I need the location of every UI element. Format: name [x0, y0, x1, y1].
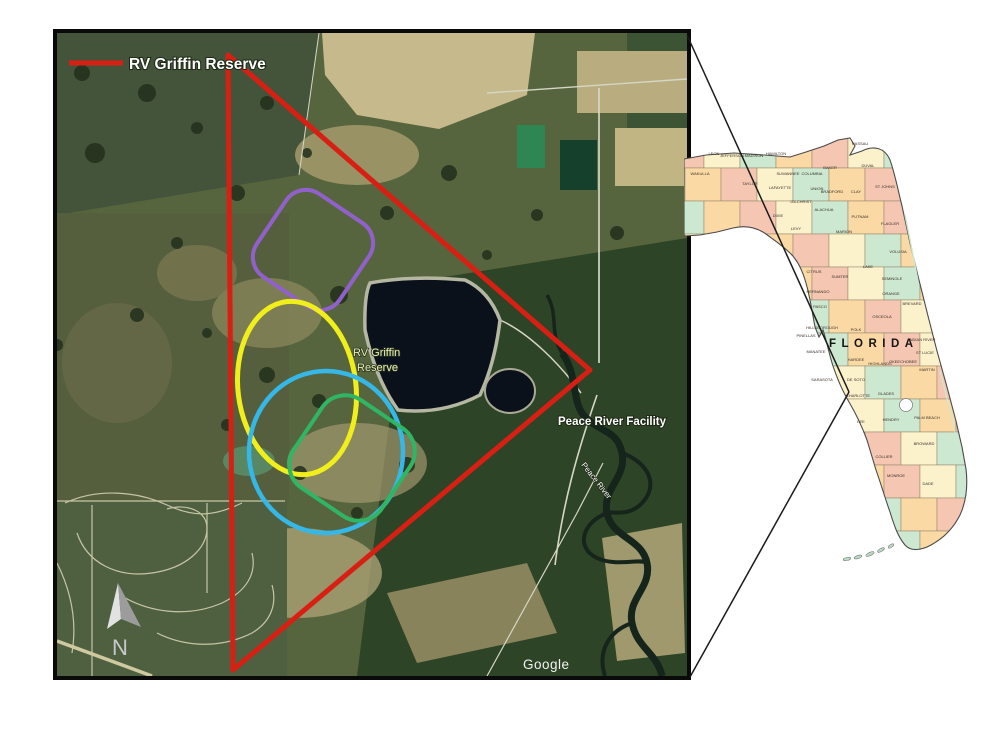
county-cell — [848, 531, 884, 564]
field-right — [615, 128, 687, 186]
county-cell — [793, 366, 829, 399]
county-cell — [757, 300, 793, 333]
county-cell — [740, 333, 776, 366]
green-pond — [517, 125, 545, 168]
county-cell — [757, 564, 793, 570]
county-cell — [684, 465, 704, 498]
county-label: CLAY — [851, 189, 861, 194]
county-cell — [865, 432, 901, 465]
county-cell — [721, 564, 757, 570]
county-label: HERNANDO — [807, 289, 830, 294]
county-label: ORANGE — [882, 291, 900, 296]
county-cell — [704, 201, 740, 234]
county-cell — [829, 432, 865, 465]
county-cell — [685, 234, 721, 267]
county-label: OKEECHOBEE — [889, 359, 917, 364]
county-cell — [704, 333, 740, 366]
county-cell — [956, 531, 974, 564]
county-cell — [684, 267, 704, 300]
florida-keys — [843, 543, 895, 561]
county-cell — [956, 465, 974, 498]
county-cell — [901, 168, 937, 201]
county-cell — [685, 300, 721, 333]
county-cell — [721, 234, 757, 267]
county-label: POLK — [851, 327, 862, 332]
field-patch — [295, 125, 419, 185]
county-label: HIGHLANDS — [868, 361, 892, 366]
county-cell — [740, 267, 776, 300]
county-cell — [812, 465, 848, 498]
county-label: PINELLAS — [796, 333, 815, 338]
county-label: LAFAYETTE — [769, 185, 792, 190]
county-label: TAYLOR — [742, 181, 758, 186]
county-label: DADE — [922, 481, 933, 486]
county-cell — [973, 564, 974, 570]
county-cell — [937, 432, 973, 465]
county-label: LEVY — [791, 226, 802, 231]
county-cell — [757, 498, 793, 531]
figure: RV Griffin Reserve RV Griffin Reserve Pe… — [0, 0, 1003, 744]
county-label: BREVARD — [902, 301, 921, 306]
county-label: NASSAU — [852, 141, 869, 146]
county-label: DIXIE — [773, 213, 784, 218]
county-cell — [956, 135, 974, 168]
county-label: WAKULLA — [691, 171, 710, 176]
county-label: HARDEE — [848, 357, 865, 362]
county-cell — [884, 465, 920, 498]
county-cell — [721, 300, 757, 333]
county-cell — [685, 498, 721, 531]
county-label: GILCHRIST — [790, 199, 812, 204]
county-cell — [956, 399, 974, 432]
small-reservoir — [485, 369, 535, 413]
county-cell — [684, 201, 704, 234]
county-label: PASCO — [813, 304, 827, 309]
county-cell — [685, 366, 721, 399]
county-cell — [793, 432, 829, 465]
county-cell — [704, 399, 740, 432]
county-label: CHARLOTTE — [846, 393, 871, 398]
county-cell — [829, 564, 865, 570]
lake-okeechobee — [900, 399, 913, 412]
county-cell — [793, 498, 829, 531]
florida-canvas: WAKULLALEONJEFFERSONMADISONHAMILTONSUWAN… — [684, 133, 974, 570]
county-cell — [920, 135, 956, 168]
google-watermark: Google — [523, 657, 570, 672]
county-label: MARTIN — [919, 367, 934, 372]
county-label: LAKE — [863, 264, 874, 269]
county-label: MONROE — [887, 473, 905, 478]
county-label: PUTNAM — [852, 214, 869, 219]
county-cell — [829, 168, 865, 201]
county-label: HAMILTON — [766, 151, 786, 156]
county-cell — [901, 432, 937, 465]
county-cell — [776, 531, 812, 564]
county-cell — [812, 399, 848, 432]
county-label: MADISON — [745, 153, 764, 158]
county-cell — [901, 498, 937, 531]
county-cell — [829, 234, 865, 267]
facility-label: Peace River Facility — [558, 416, 667, 428]
county-cell — [685, 564, 721, 570]
county-cell — [740, 465, 776, 498]
county-label: VOLUSIA — [889, 249, 907, 254]
county-label: LEE — [857, 419, 865, 424]
county-label: CITRUS — [807, 269, 822, 274]
county-cell — [684, 135, 704, 168]
county-label: BROWARD — [914, 441, 935, 446]
county-cell — [973, 366, 974, 399]
county-cell — [848, 267, 884, 300]
county-cell — [956, 201, 974, 234]
reserve-label-line1: RV Griffin — [353, 347, 400, 359]
county-cell — [865, 498, 901, 531]
county-label: SARASOTA — [811, 377, 833, 382]
county-cell — [829, 498, 865, 531]
county-cell — [793, 234, 829, 267]
county-cell — [973, 432, 974, 465]
county-cell — [684, 399, 704, 432]
county-cell — [956, 333, 974, 366]
county-label: ALACHUA — [815, 207, 834, 212]
county-cell — [848, 465, 884, 498]
county-cell — [793, 564, 829, 570]
county-label: ST LUCIE — [916, 350, 934, 355]
county-label: COLUMBIA — [802, 171, 823, 176]
wetland-patch — [157, 245, 237, 301]
county-cell — [973, 300, 974, 333]
field-top-right — [577, 51, 687, 113]
county-cell — [776, 399, 812, 432]
satellite-map: RV Griffin Reserve RV Griffin Reserve Pe… — [53, 29, 691, 680]
county-label: SUWANNEE — [777, 171, 800, 176]
county-cell — [812, 135, 848, 168]
county-cell — [937, 168, 973, 201]
county-cell — [740, 531, 776, 564]
county-cell — [937, 300, 973, 333]
county-cell — [721, 366, 757, 399]
county-label: GLADES — [878, 391, 895, 396]
county-label: SEMINOLE — [882, 276, 903, 281]
county-cell — [776, 465, 812, 498]
county-cell — [740, 399, 776, 432]
county-cell — [685, 432, 721, 465]
county-cell — [704, 267, 740, 300]
county-label: BAKER — [823, 165, 837, 170]
county-cell — [848, 399, 884, 432]
county-cell — [812, 531, 848, 564]
county-cell — [937, 234, 973, 267]
county-label: DUVAL — [861, 163, 875, 168]
county-cell — [704, 465, 740, 498]
county-label: ST JOHNS — [875, 184, 895, 189]
county-label: FLAGLER — [881, 221, 899, 226]
county-cell — [937, 564, 973, 570]
county-label: LEON — [709, 151, 720, 156]
dark-pond — [560, 140, 597, 190]
county-cell — [721, 432, 757, 465]
county-label: HENDRY — [883, 417, 900, 422]
county-cell — [920, 267, 956, 300]
florida-inset-map: WAKULLALEONJEFFERSONMADISONHAMILTONSUWAN… — [684, 133, 974, 570]
county-cell — [684, 531, 704, 564]
county-cell — [956, 267, 974, 300]
county-label: OSCEOLA — [872, 314, 892, 319]
county-label: HILLSBOROUGH — [806, 325, 838, 330]
county-label: PALM BEACH — [914, 415, 940, 420]
county-cell — [704, 531, 740, 564]
legend-label: RV Griffin Reserve — [129, 56, 266, 73]
suburb — [57, 493, 287, 676]
county-label: JEFFERSON — [720, 153, 744, 158]
county-cell — [937, 498, 973, 531]
county-cell — [684, 333, 704, 366]
florida-title: FLORIDA — [829, 338, 919, 350]
county-cell — [884, 135, 920, 168]
north-label: N — [112, 635, 128, 660]
county-label: SUMTER — [832, 274, 849, 279]
county-label: DE SOTO — [847, 377, 865, 382]
county-cell — [865, 564, 901, 570]
county-label: COLLIER — [875, 454, 892, 459]
county-cell — [973, 234, 974, 267]
county-cell — [973, 498, 974, 531]
wetland-patch — [62, 303, 172, 423]
county-label: BRADFORD — [821, 189, 844, 194]
reserve-label-line2: Reserve — [357, 362, 398, 374]
county-cell — [973, 168, 974, 201]
county-cell — [757, 432, 793, 465]
county-cell — [920, 201, 956, 234]
county-label: MANATEE — [806, 349, 825, 354]
county-cell — [721, 498, 757, 531]
county-cell — [757, 366, 793, 399]
satellite-canvas: RV Griffin Reserve RV Griffin Reserve Pe… — [57, 33, 687, 676]
county-cell — [901, 564, 937, 570]
reservoir — [365, 278, 500, 411]
county-label: MARION — [836, 229, 852, 234]
